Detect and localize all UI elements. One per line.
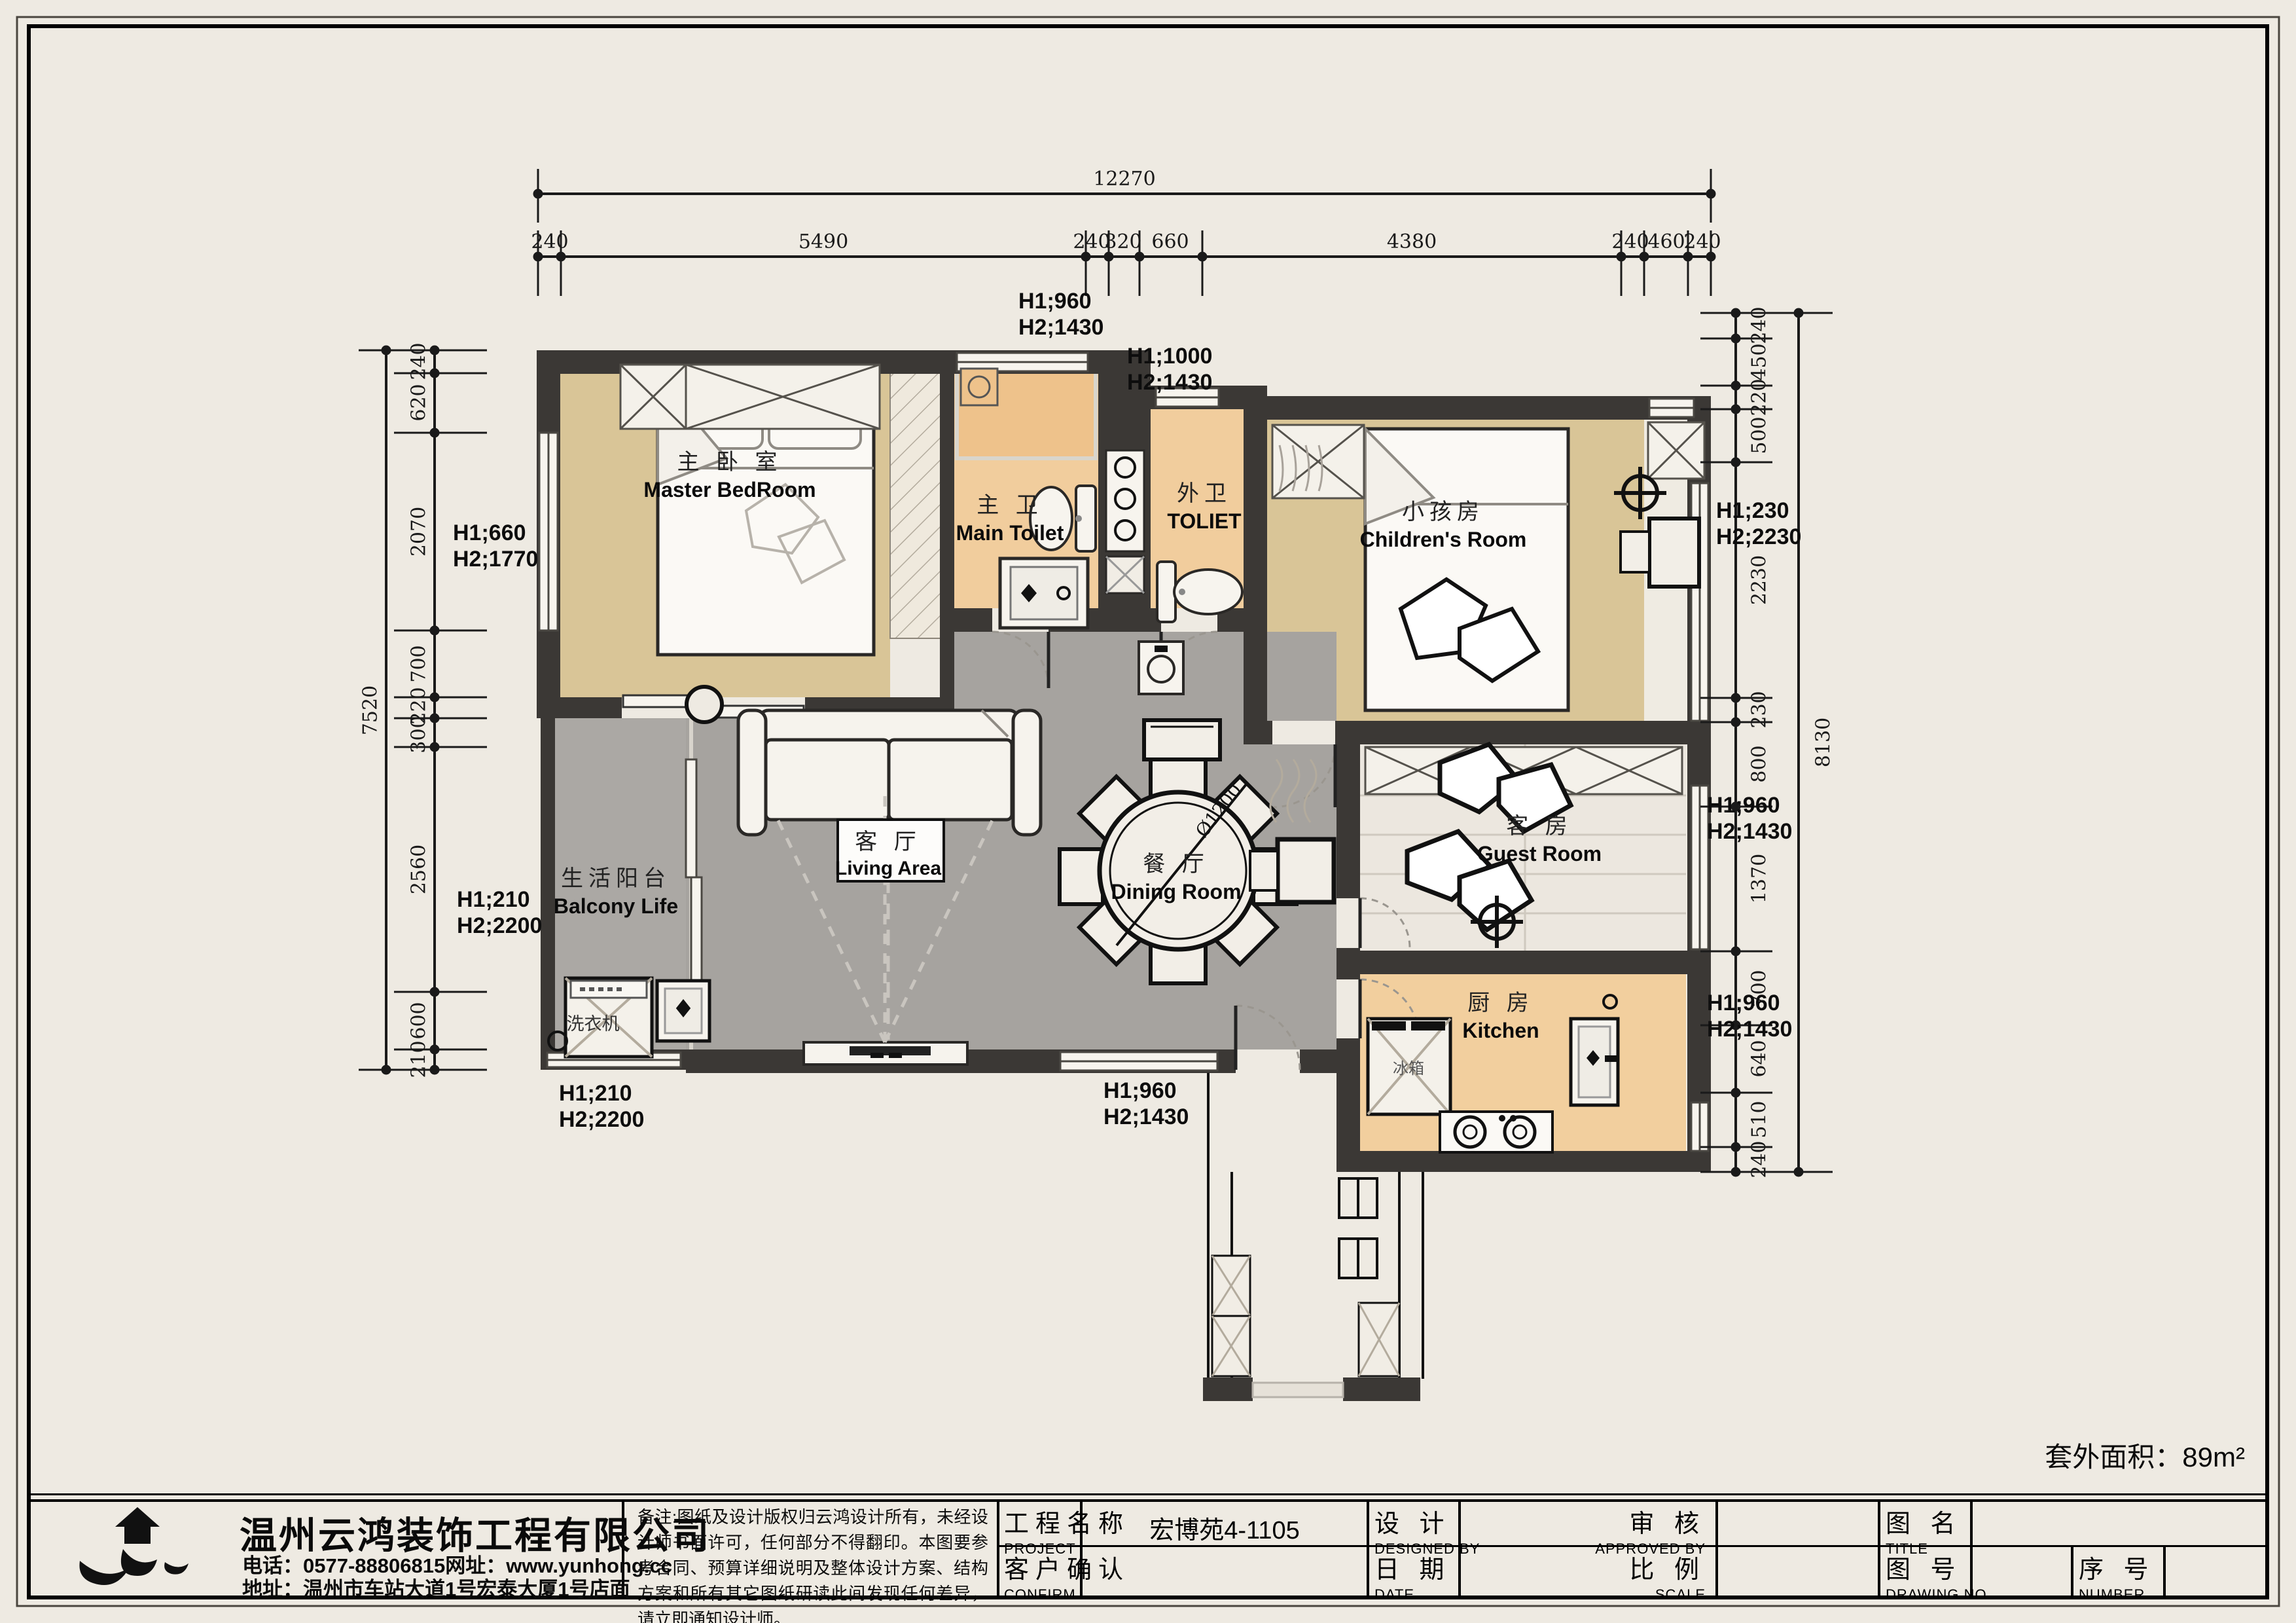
annotation-window-top-1: H1;960H2;1430 — [1018, 288, 1103, 340]
room-label-dining: 餐 厅Dining Room — [1111, 846, 1241, 904]
dim-left-seg-2: 2070 — [408, 507, 431, 556]
annotation-window-bottom-2: H1;960H2;1430 — [1103, 1078, 1189, 1130]
room-label-master: 主 卧 室Master BedRoom — [643, 444, 816, 502]
dim-top-seg-5: 4380 — [1387, 230, 1437, 253]
balcony-sink — [657, 981, 709, 1041]
dim-left-seg-8: 210 — [408, 1040, 431, 1078]
children-wardrobe — [1272, 425, 1364, 498]
annotation-window-left-2: H1;210H2;2200 — [457, 886, 542, 939]
master-closet — [620, 365, 880, 429]
room-label-guest: 客 房Guest Room — [1477, 808, 1602, 866]
dim-left-seg-7: 600 — [408, 1002, 431, 1039]
dim-top-seg-3: 320 — [1104, 230, 1141, 253]
dim-top-seg-0: 240 — [531, 230, 568, 253]
room-label-children: 小孩房Children's Room — [1360, 494, 1527, 552]
room-label-balcony: 生活阳台Balcony Life — [554, 860, 678, 919]
dim-right-seg-4: 2230 — [1748, 555, 1771, 605]
dim-left-seg-6: 2560 — [408, 845, 431, 894]
dim-left-seg-5: 300 — [408, 716, 431, 753]
annotation-window-right-2: H1;960H2;1430 — [1707, 792, 1792, 845]
field-number: 序 号NUMBER — [2079, 1549, 2155, 1603]
dim-right-seg-7: 1370 — [1748, 854, 1771, 903]
dim-left-seg-3: 700 — [408, 645, 431, 682]
tb-v6 — [1715, 1499, 1718, 1597]
field-scale: 比 例SCALE — [1461, 1549, 1706, 1603]
dim-top-seg-4: 660 — [1151, 230, 1189, 253]
tb-v2 — [997, 1499, 999, 1597]
dim-left-total: 7520 — [359, 685, 382, 735]
tb-v9 — [2071, 1545, 2073, 1597]
fridge-label: 冰箱 — [1393, 1055, 1424, 1078]
titleblock-top-line — [29, 1493, 2267, 1495]
tv-cabinet — [804, 1042, 967, 1065]
dim-right-seg-6: 800 — [1748, 745, 1771, 782]
dim-right-total: 8130 — [1812, 718, 1835, 767]
ac-box — [1648, 422, 1704, 479]
titleblock-notes: 备注:图纸及设计版权归云鸿设计所有，未经设计师书面许可，任何部分不得翻印。本图要… — [637, 1504, 988, 1623]
annotation-window-right-1: H1;230H2;2230 — [1716, 498, 1801, 550]
hall-washbasin — [1139, 642, 1183, 694]
tb-v7 — [1878, 1499, 1880, 1597]
dim-right-seg-1: 450 — [1748, 343, 1771, 380]
field-date: 日 期DATE — [1374, 1549, 1451, 1603]
company-logo — [60, 1503, 217, 1595]
annotation-window-top-2: H1;1000H2;1430 — [1127, 343, 1212, 395]
room-label-toilet: 外卫TOLIET — [1167, 475, 1241, 534]
company-address: 地址：温州市车站大道1号宏泰大厦1号店面 — [242, 1573, 630, 1602]
dim-right-seg-9: 640 — [1748, 1040, 1771, 1077]
area-note: 套外面积：89m² — [1996, 1435, 2245, 1475]
dim-top-seg-1: 5490 — [798, 230, 848, 253]
dim-right-seg-3: 500 — [1748, 416, 1771, 454]
dim-right-seg-2: 220 — [1748, 378, 1771, 416]
sofa — [738, 710, 1041, 835]
field-drawing-no: 图 号DRAWING NO — [1886, 1549, 1987, 1603]
dim-right-seg-0: 240 — [1748, 306, 1771, 344]
dim-top-seg-6: 240 — [1611, 230, 1649, 253]
dim-left-seg-0: 240 — [408, 342, 431, 380]
plumbing-shaft — [1106, 450, 1144, 593]
dim-top-total: 12270 — [1093, 168, 1155, 191]
floor-plan-drawing — [0, 0, 2296, 1623]
dim-top-seg-7: 460 — [1647, 230, 1685, 253]
dim-right-seg-11: 240 — [1748, 1140, 1771, 1178]
children-bed — [1365, 429, 1568, 710]
dim-left-seg-1: 620 — [408, 384, 431, 421]
room-label-kitchen: 厨 房Kitchen — [1462, 985, 1539, 1043]
room-label-living: 客 厅Living Area — [835, 824, 941, 880]
tb-v10 — [2163, 1545, 2166, 1597]
dim-right-seg-5: 230 — [1748, 691, 1771, 728]
washer-label: 洗衣机 — [567, 1010, 620, 1035]
annotation-window-right-3: H1;960H2;1430 — [1707, 990, 1792, 1042]
annotation-window-left-1: H1;660H2;1770 — [453, 520, 538, 572]
dim-right-seg-10: 510 — [1748, 1101, 1771, 1138]
tb-v4 — [1367, 1499, 1369, 1597]
field-confirm: 客户确认CONFIRM — [1004, 1549, 1130, 1603]
dim-top-seg-8: 240 — [1683, 230, 1721, 253]
project-value: 宏博苑4-1105 — [1083, 1510, 1367, 1546]
titleblock-top-line-2 — [29, 1499, 2267, 1502]
annotation-window-bottom-1: H1;210H2;2200 — [559, 1080, 644, 1133]
drawing-sheet: 12270 240 5490 240 320 660 4380 240 460 … — [0, 0, 2296, 1623]
room-label-main-toilet: 主 卫Main Toilet — [956, 487, 1064, 545]
